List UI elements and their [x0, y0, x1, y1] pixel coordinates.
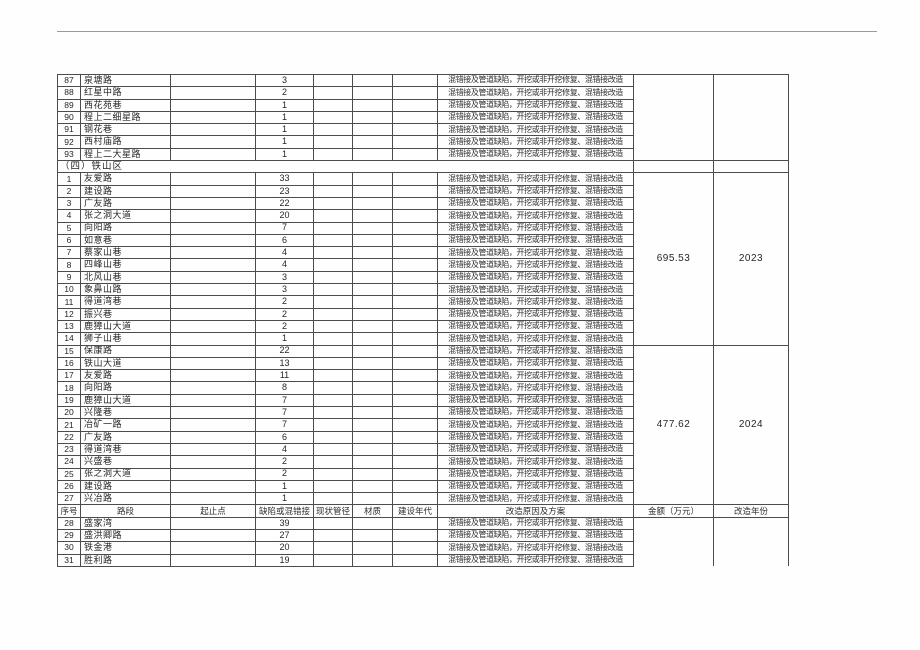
- material-cell: [353, 443, 393, 455]
- road-name-cell: 兴盛巷: [81, 456, 171, 468]
- build-year-cell: [393, 480, 438, 492]
- defect-count-cell: 1: [256, 136, 314, 148]
- road-name-cell: 张之洞大道: [81, 210, 171, 222]
- road-name-cell: 振兴巷: [81, 308, 171, 320]
- build-year-cell: [393, 320, 438, 332]
- pipe-diameter-cell: [314, 308, 353, 320]
- row-number-cell: 7: [58, 247, 81, 259]
- pipe-diameter-cell: [314, 480, 353, 492]
- material-cell: [353, 456, 393, 468]
- table-row: 1友爱路33混错接及管道缺陷，开挖或非开挖修复、混错接改造695.532023: [58, 173, 789, 185]
- road-name-cell: 向阳路: [81, 382, 171, 394]
- road-name-cell: 友爱路: [81, 370, 171, 382]
- material-cell: [353, 234, 393, 246]
- defect-count-cell: 7: [256, 407, 314, 419]
- start-end-cell: [171, 529, 256, 541]
- defect-count-cell: 3: [256, 284, 314, 296]
- road-name-cell: 盛家湾: [81, 517, 171, 529]
- defect-count-cell: 23: [256, 185, 314, 197]
- road-name-cell: 钢花巷: [81, 124, 171, 136]
- row-number-cell: 26: [58, 480, 81, 492]
- material-cell: [353, 382, 393, 394]
- remediation-cell: 混错接及管道缺陷，开挖或非开挖修复、混错接改造: [438, 419, 634, 431]
- road-name-cell: 兴隆巷: [81, 407, 171, 419]
- road-name-cell: 程上二细星路: [81, 111, 171, 123]
- year-merged-cell: 2023: [714, 173, 789, 345]
- row-number-cell: 29: [58, 529, 81, 541]
- year-merged-cell: 2024: [714, 345, 789, 505]
- pipe-diameter-cell: [314, 148, 353, 160]
- table-row: 28盛家湾39混错接及管道缺陷，开挖或非开挖修复、混错接改造: [58, 517, 789, 529]
- road-name-cell: 建设路: [81, 185, 171, 197]
- row-number-cell: 25: [58, 468, 81, 480]
- build-year-cell: [393, 443, 438, 455]
- defect-count-cell: 20: [256, 542, 314, 554]
- start-end-cell: [171, 99, 256, 111]
- pipe-diameter-cell: [314, 234, 353, 246]
- build-year-cell: [393, 517, 438, 529]
- road-name-cell: 保康路: [81, 345, 171, 357]
- pipe-diameter-cell: [314, 493, 353, 505]
- scanned-page: 87泉塘路3混错接及管道缺陷，开挖或非开挖修复、混错接改造88红星中路2混错接及…: [0, 0, 920, 650]
- start-end-cell: [171, 197, 256, 209]
- defect-count-cell: 4: [256, 259, 314, 271]
- pipe-diameter-cell: [314, 284, 353, 296]
- road-name-cell: 泉塘路: [81, 75, 171, 87]
- remediation-cell: 混错接及管道缺陷，开挖或非开挖修复、混错接改造: [438, 124, 634, 136]
- pipe-diameter-cell: [314, 357, 353, 369]
- material-cell: [353, 296, 393, 308]
- row-number-cell: 20: [58, 407, 81, 419]
- road-name-cell: 建设路: [81, 480, 171, 492]
- remediation-cell: 混错接及管道缺陷，开挖或非开挖修复、混错接改造: [438, 407, 634, 419]
- page-top-rule: [57, 31, 877, 32]
- renovation-plan-table: 87泉塘路3混错接及管道缺陷，开挖或非开挖修复、混错接改造88红星中路2混错接及…: [57, 74, 789, 567]
- pipe-diameter-cell: [314, 75, 353, 87]
- defect-count-cell: 33: [256, 173, 314, 185]
- defect-count-cell: 2: [256, 468, 314, 480]
- remediation-cell: 混错接及管道缺陷，开挖或非开挖修复、混错接改造: [438, 173, 634, 185]
- start-end-cell: [171, 542, 256, 554]
- defect-count-cell: 1: [256, 493, 314, 505]
- build-year-cell: [393, 382, 438, 394]
- build-year-cell: [393, 210, 438, 222]
- remediation-cell: 混错接及管道缺陷，开挖或非开挖修复、混错接改造: [438, 87, 634, 99]
- build-year-cell: [393, 271, 438, 283]
- amount-cell: [634, 161, 714, 173]
- row-number-cell: 90: [58, 111, 81, 123]
- road-name-cell: 得道湾巷: [81, 443, 171, 455]
- build-year-cell: [393, 185, 438, 197]
- defect-count-cell: 22: [256, 345, 314, 357]
- row-number-cell: 12: [58, 308, 81, 320]
- defect-count-cell: 2: [256, 456, 314, 468]
- material-cell: [353, 431, 393, 443]
- amount-merged-cell: [634, 75, 714, 161]
- year-merged-cell: [714, 517, 789, 566]
- material-cell: [353, 517, 393, 529]
- row-number-cell: 6: [58, 234, 81, 246]
- defect-count-cell: 1: [256, 111, 314, 123]
- amount-merged-cell: 477.62: [634, 345, 714, 505]
- defect-count-cell: 3: [256, 271, 314, 283]
- defect-count-cell: 2: [256, 87, 314, 99]
- remediation-cell: 混错接及管道缺陷，开挖或非开挖修复、混错接改造: [438, 357, 634, 369]
- material-cell: [353, 222, 393, 234]
- remediation-cell: 混错接及管道缺陷，开挖或非开挖修复、混错接改造: [438, 320, 634, 332]
- defect-count-cell: 2: [256, 320, 314, 332]
- road-name-cell: 狮子山巷: [81, 333, 171, 345]
- remediation-cell: 混错接及管道缺陷，开挖或非开挖修复、混错接改造: [438, 431, 634, 443]
- material-cell: [353, 333, 393, 345]
- material-cell: [353, 554, 393, 566]
- row-number-cell: 10: [58, 284, 81, 296]
- road-name-cell: 象鼻山路: [81, 284, 171, 296]
- remediation-cell: 混错接及管道缺陷，开挖或非开挖修复、混错接改造: [438, 222, 634, 234]
- defect-count-cell: 22: [256, 197, 314, 209]
- material-cell: [353, 320, 393, 332]
- column-header-0: 序号: [58, 505, 81, 517]
- build-year-cell: [393, 234, 438, 246]
- road-name-cell: 鹿獐山大道: [81, 394, 171, 406]
- pipe-diameter-cell: [314, 517, 353, 529]
- road-name-cell: 友爱路: [81, 173, 171, 185]
- road-name-cell: 如意巷: [81, 234, 171, 246]
- defect-count-cell: 1: [256, 124, 314, 136]
- build-year-cell: [393, 357, 438, 369]
- material-cell: [353, 493, 393, 505]
- row-number-cell: 21: [58, 419, 81, 431]
- remediation-cell: 混错接及管道缺陷，开挖或非开挖修复、混错接改造: [438, 333, 634, 345]
- build-year-cell: [393, 136, 438, 148]
- row-number-cell: 1: [58, 173, 81, 185]
- build-year-cell: [393, 296, 438, 308]
- remediation-cell: 混错接及管道缺陷，开挖或非开挖修复、混错接改造: [438, 443, 634, 455]
- road-name-cell: 冶矿一路: [81, 419, 171, 431]
- build-year-cell: [393, 99, 438, 111]
- row-number-cell: 14: [58, 333, 81, 345]
- row-number-cell: 87: [58, 75, 81, 87]
- material-cell: [353, 542, 393, 554]
- year-cell: [714, 161, 789, 173]
- defect-count-cell: 11: [256, 370, 314, 382]
- pipe-diameter-cell: [314, 345, 353, 357]
- start-end-cell: [171, 173, 256, 185]
- road-name-cell: 广友路: [81, 431, 171, 443]
- remediation-cell: 混错接及管道缺陷，开挖或非开挖修复、混错接改造: [438, 75, 634, 87]
- pipe-diameter-cell: [314, 111, 353, 123]
- material-cell: [353, 185, 393, 197]
- build-year-cell: [393, 394, 438, 406]
- remediation-cell: 混错接及管道缺陷，开挖或非开挖修复、混错接改造: [438, 99, 634, 111]
- defect-count-cell: 1: [256, 99, 314, 111]
- row-number-cell: 17: [58, 370, 81, 382]
- defect-count-cell: 1: [256, 480, 314, 492]
- build-year-cell: [393, 284, 438, 296]
- remediation-cell: 混错接及管道缺陷，开挖或非开挖修复、混错接改造: [438, 493, 634, 505]
- material-cell: [353, 259, 393, 271]
- road-name-cell: 北风山巷: [81, 271, 171, 283]
- row-number-cell: 30: [58, 542, 81, 554]
- remediation-cell: 混错接及管道缺陷，开挖或非开挖修复、混错接改造: [438, 480, 634, 492]
- remediation-cell: 混错接及管道缺陷，开挖或非开挖修复、混错接改造: [438, 148, 634, 160]
- start-end-cell: [171, 234, 256, 246]
- row-number-cell: 5: [58, 222, 81, 234]
- build-year-cell: [393, 124, 438, 136]
- remediation-cell: 混错接及管道缺陷，开挖或非开挖修复、混错接改造: [438, 271, 634, 283]
- road-name-cell: 广友路: [81, 197, 171, 209]
- defect-count-cell: 6: [256, 234, 314, 246]
- start-end-cell: [171, 185, 256, 197]
- start-end-cell: [171, 370, 256, 382]
- start-end-cell: [171, 296, 256, 308]
- defect-count-cell: 6: [256, 431, 314, 443]
- remediation-cell: 混错接及管道缺陷，开挖或非开挖修复、混错接改造: [438, 210, 634, 222]
- row-number-cell: 31: [58, 554, 81, 566]
- pipe-diameter-cell: [314, 443, 353, 455]
- start-end-cell: [171, 284, 256, 296]
- start-end-cell: [171, 382, 256, 394]
- defect-count-cell: 7: [256, 394, 314, 406]
- remediation-cell: 混错接及管道缺陷，开挖或非开挖修复、混错接改造: [438, 308, 634, 320]
- remediation-cell: 混错接及管道缺陷，开挖或非开挖修复、混错接改造: [438, 136, 634, 148]
- build-year-cell: [393, 75, 438, 87]
- table-body: 87泉塘路3混错接及管道缺陷，开挖或非开挖修复、混错接改造88红星中路2混错接及…: [58, 75, 789, 567]
- road-name-cell: 得道湾巷: [81, 296, 171, 308]
- pipe-diameter-cell: [314, 333, 353, 345]
- column-header-2: 起止点: [171, 505, 256, 517]
- pipe-diameter-cell: [314, 456, 353, 468]
- build-year-cell: [393, 247, 438, 259]
- material-cell: [353, 210, 393, 222]
- pipe-diameter-cell: [314, 222, 353, 234]
- build-year-cell: [393, 259, 438, 271]
- repeated-header-row: 序号路段起止点缺陷或混错接现状管径材质建设年代改造原因及方案金额（万元）改造年份: [58, 505, 789, 517]
- row-number-cell: 3: [58, 197, 81, 209]
- pipe-diameter-cell: [314, 124, 353, 136]
- road-name-cell: 胜利路: [81, 554, 171, 566]
- build-year-cell: [393, 493, 438, 505]
- material-cell: [353, 480, 393, 492]
- material-cell: [353, 136, 393, 148]
- remediation-cell: 混错接及管道缺陷，开挖或非开挖修复、混错接改造: [438, 529, 634, 541]
- pipe-diameter-cell: [314, 468, 353, 480]
- pipe-diameter-cell: [314, 271, 353, 283]
- section-row: （四）铁山区: [58, 161, 789, 173]
- start-end-cell: [171, 259, 256, 271]
- table-row: 15保康路22混错接及管道缺陷，开挖或非开挖修复、混错接改造477.622024: [58, 345, 789, 357]
- row-number-cell: 92: [58, 136, 81, 148]
- remediation-cell: 混错接及管道缺陷，开挖或非开挖修复、混错接改造: [438, 370, 634, 382]
- pipe-diameter-cell: [314, 419, 353, 431]
- start-end-cell: [171, 124, 256, 136]
- pipe-diameter-cell: [314, 185, 353, 197]
- build-year-cell: [393, 370, 438, 382]
- road-name-cell: 兴冶路: [81, 493, 171, 505]
- build-year-cell: [393, 468, 438, 480]
- material-cell: [353, 284, 393, 296]
- defect-count-cell: 20: [256, 210, 314, 222]
- defect-count-cell: 39: [256, 517, 314, 529]
- start-end-cell: [171, 210, 256, 222]
- column-header-6: 建设年代: [393, 505, 438, 517]
- defect-count-cell: 13: [256, 357, 314, 369]
- pipe-diameter-cell: [314, 554, 353, 566]
- column-header-8: 金额（万元）: [634, 505, 714, 517]
- build-year-cell: [393, 542, 438, 554]
- defect-count-cell: 7: [256, 419, 314, 431]
- defect-count-cell: 3: [256, 75, 314, 87]
- start-end-cell: [171, 431, 256, 443]
- row-number-cell: 24: [58, 456, 81, 468]
- table-row: 87泉塘路3混错接及管道缺陷，开挖或非开挖修复、混错接改造: [58, 75, 789, 87]
- remediation-cell: 混错接及管道缺陷，开挖或非开挖修复、混错接改造: [438, 111, 634, 123]
- build-year-cell: [393, 554, 438, 566]
- pipe-diameter-cell: [314, 87, 353, 99]
- start-end-cell: [171, 308, 256, 320]
- build-year-cell: [393, 148, 438, 160]
- road-name-cell: 西村庙路: [81, 136, 171, 148]
- pipe-diameter-cell: [314, 382, 353, 394]
- remediation-cell: 混错接及管道缺陷，开挖或非开挖修复、混错接改造: [438, 185, 634, 197]
- material-cell: [353, 394, 393, 406]
- build-year-cell: [393, 529, 438, 541]
- row-number-cell: 2: [58, 185, 81, 197]
- column-header-5: 材质: [353, 505, 393, 517]
- build-year-cell: [393, 87, 438, 99]
- build-year-cell: [393, 197, 438, 209]
- road-name-cell: 张之洞大道: [81, 468, 171, 480]
- road-name-cell: 四峰山巷: [81, 259, 171, 271]
- build-year-cell: [393, 308, 438, 320]
- pipe-diameter-cell: [314, 136, 353, 148]
- remediation-cell: 混错接及管道缺陷，开挖或非开挖修复、混错接改造: [438, 382, 634, 394]
- build-year-cell: [393, 407, 438, 419]
- material-cell: [353, 99, 393, 111]
- defect-count-cell: 27: [256, 529, 314, 541]
- build-year-cell: [393, 111, 438, 123]
- row-number-cell: 15: [58, 345, 81, 357]
- start-end-cell: [171, 320, 256, 332]
- material-cell: [353, 529, 393, 541]
- build-year-cell: [393, 173, 438, 185]
- row-number-cell: 11: [58, 296, 81, 308]
- material-cell: [353, 419, 393, 431]
- material-cell: [353, 370, 393, 382]
- remediation-cell: 混错接及管道缺陷，开挖或非开挖修复、混错接改造: [438, 197, 634, 209]
- start-end-cell: [171, 271, 256, 283]
- road-name-cell: 西花苑巷: [81, 99, 171, 111]
- start-end-cell: [171, 468, 256, 480]
- row-number-cell: 93: [58, 148, 81, 160]
- remediation-cell: 混错接及管道缺陷，开挖或非开挖修复、混错接改造: [438, 517, 634, 529]
- pipe-diameter-cell: [314, 394, 353, 406]
- build-year-cell: [393, 345, 438, 357]
- start-end-cell: [171, 554, 256, 566]
- row-number-cell: 27: [58, 493, 81, 505]
- pipe-diameter-cell: [314, 247, 353, 259]
- build-year-cell: [393, 419, 438, 431]
- section-label: （四）铁山区: [58, 161, 634, 173]
- build-year-cell: [393, 333, 438, 345]
- row-number-cell: 22: [58, 431, 81, 443]
- column-header-3: 缺陷或混错接: [256, 505, 314, 517]
- road-name-cell: 鹿獐山大道: [81, 320, 171, 332]
- pipe-diameter-cell: [314, 210, 353, 222]
- row-number-cell: 9: [58, 271, 81, 283]
- pipe-diameter-cell: [314, 320, 353, 332]
- row-number-cell: 88: [58, 87, 81, 99]
- defect-count-cell: 1: [256, 333, 314, 345]
- start-end-cell: [171, 222, 256, 234]
- material-cell: [353, 173, 393, 185]
- start-end-cell: [171, 345, 256, 357]
- pipe-diameter-cell: [314, 197, 353, 209]
- row-number-cell: 4: [58, 210, 81, 222]
- material-cell: [353, 75, 393, 87]
- road-name-cell: 红星中路: [81, 87, 171, 99]
- start-end-cell: [171, 480, 256, 492]
- pipe-diameter-cell: [314, 529, 353, 541]
- start-end-cell: [171, 394, 256, 406]
- column-header-7: 改造原因及方案: [438, 505, 634, 517]
- remediation-cell: 混错接及管道缺陷，开挖或非开挖修复、混错接改造: [438, 468, 634, 480]
- road-name-cell: 铁山大道: [81, 357, 171, 369]
- remediation-cell: 混错接及管道缺陷，开挖或非开挖修复、混错接改造: [438, 284, 634, 296]
- material-cell: [353, 468, 393, 480]
- remediation-cell: 混错接及管道缺陷，开挖或非开挖修复、混错接改造: [438, 554, 634, 566]
- defect-count-cell: 1: [256, 148, 314, 160]
- pipe-diameter-cell: [314, 99, 353, 111]
- row-number-cell: 91: [58, 124, 81, 136]
- material-cell: [353, 308, 393, 320]
- start-end-cell: [171, 136, 256, 148]
- start-end-cell: [171, 419, 256, 431]
- pipe-diameter-cell: [314, 173, 353, 185]
- defect-count-cell: 4: [256, 247, 314, 259]
- amount-merged-cell: 695.53: [634, 173, 714, 345]
- material-cell: [353, 357, 393, 369]
- start-end-cell: [171, 247, 256, 259]
- start-end-cell: [171, 75, 256, 87]
- row-number-cell: 13: [58, 320, 81, 332]
- remediation-cell: 混错接及管道缺陷，开挖或非开挖修复、混错接改造: [438, 259, 634, 271]
- material-cell: [353, 111, 393, 123]
- remediation-cell: 混错接及管道缺陷，开挖或非开挖修复、混错接改造: [438, 247, 634, 259]
- start-end-cell: [171, 443, 256, 455]
- material-cell: [353, 247, 393, 259]
- start-end-cell: [171, 148, 256, 160]
- pipe-diameter-cell: [314, 296, 353, 308]
- pipe-diameter-cell: [314, 431, 353, 443]
- material-cell: [353, 271, 393, 283]
- column-header-4: 现状管径: [314, 505, 353, 517]
- start-end-cell: [171, 456, 256, 468]
- row-number-cell: 16: [58, 357, 81, 369]
- start-end-cell: [171, 407, 256, 419]
- remediation-cell: 混错接及管道缺陷，开挖或非开挖修复、混错接改造: [438, 234, 634, 246]
- material-cell: [353, 87, 393, 99]
- column-header-9: 改造年份: [714, 505, 789, 517]
- build-year-cell: [393, 456, 438, 468]
- material-cell: [353, 148, 393, 160]
- build-year-cell: [393, 222, 438, 234]
- start-end-cell: [171, 517, 256, 529]
- remediation-cell: 混错接及管道缺陷，开挖或非开挖修复、混错接改造: [438, 394, 634, 406]
- road-name-cell: 盛洪卿路: [81, 529, 171, 541]
- amount-merged-cell: [634, 517, 714, 566]
- year-merged-cell: [714, 75, 789, 161]
